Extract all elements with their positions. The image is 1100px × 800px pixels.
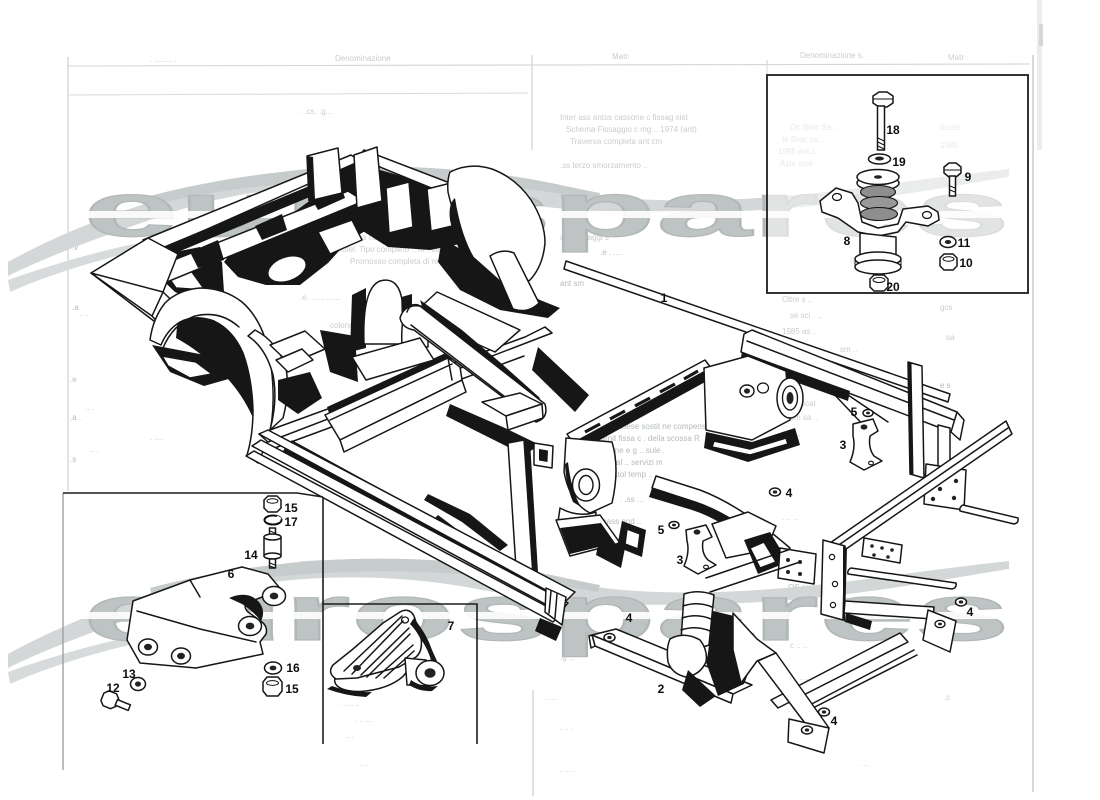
svg-text:17: 17 <box>284 515 298 529</box>
svg-text:sm ..: sm .. <box>840 345 857 354</box>
svg-text:. .cs. .g...: . .cs. .g... <box>300 107 332 116</box>
svg-text:6: 6 <box>228 567 235 581</box>
svg-text:.e. ...... ......: .e. ...... ...... <box>300 293 340 302</box>
svg-text:. ..: . .. <box>80 309 89 318</box>
svg-text:1: 1 <box>661 291 668 305</box>
svg-text:. .. ...: . .. ... <box>355 715 373 724</box>
svg-text:. ....: . .... <box>150 433 163 442</box>
svg-text:10: 10 <box>959 256 973 270</box>
svg-text:. ..: . .. <box>860 759 869 768</box>
svg-text:5: 5 <box>851 405 858 419</box>
svg-text:Promosso completa di re: Promosso completa di re <box>350 257 439 266</box>
svg-text:Denominazione: Denominazione <box>335 54 391 63</box>
svg-text:.. .: .. . <box>85 403 94 412</box>
svg-text:Denominazione s.: Denominazione s. <box>800 51 864 60</box>
svg-text:. ........ .: . ........ . <box>150 55 177 64</box>
svg-text:12: 12 <box>106 681 120 695</box>
svg-text:ant sm: ant sm <box>560 279 584 288</box>
svg-text:.. .: .. . <box>345 731 354 740</box>
svg-text:4: 4 <box>831 714 838 728</box>
svg-text:4: 4 <box>967 605 974 619</box>
svg-text:. .. ..: . .. .. <box>782 513 798 522</box>
svg-text:13: 13 <box>122 667 136 681</box>
svg-text:3: 3 <box>840 438 847 452</box>
svg-text:. .. .: . .. . <box>560 723 573 732</box>
svg-text:sa: sa <box>946 333 955 342</box>
svg-text:Traversa completa ant cm: Traversa completa ant cm <box>570 137 663 146</box>
svg-text:3: 3 <box>677 553 684 567</box>
svg-text:gcs: gcs <box>940 303 952 312</box>
svg-text:se sci . ..: se sci . .. <box>790 311 822 320</box>
svg-text:15: 15 <box>284 501 298 515</box>
svg-text:Schema Fissaggio c mg ..: Schema Fissaggio c mg .. 1974 (ant) <box>566 125 697 134</box>
svg-text:16: 16 <box>286 661 300 675</box>
svg-text:7: 7 <box>448 619 455 633</box>
svg-text:. .ss ...: . .ss ... <box>620 495 644 504</box>
svg-text:5: 5 <box>658 523 665 537</box>
svg-text:11: 11 <box>958 236 971 250</box>
svg-text:4: 4 <box>786 486 793 500</box>
svg-text:.a: .a <box>72 303 79 312</box>
svg-text:2: 2 <box>658 682 665 696</box>
svg-text:9: 9 <box>965 170 972 184</box>
svg-text:. ... .: . ... . <box>560 765 576 774</box>
svg-text:.c: .c <box>944 693 950 702</box>
svg-text:Inter ass antss cassone c: Inter ass antss cassone c fissag sist <box>560 113 688 122</box>
svg-text:20: 20 <box>886 280 900 294</box>
svg-text:. ...: . ... <box>545 693 556 702</box>
svg-text:Matr: Matr <box>948 53 964 62</box>
svg-text:8: 8 <box>844 234 851 248</box>
svg-text:.. .: .. . <box>90 445 99 454</box>
svg-text:19: 19 <box>892 155 906 169</box>
svg-text:. .... ..: . .... .. <box>340 699 360 708</box>
svg-text:18: 18 <box>886 123 900 137</box>
svg-text:14: 14 <box>244 548 258 562</box>
svg-text:.e: .e <box>70 375 77 384</box>
svg-text:1985 as ..: 1985 as .. <box>782 327 817 336</box>
svg-text:.s: .s <box>70 455 76 464</box>
svg-text:. ..: . .. <box>360 759 369 768</box>
svg-text:e s: e s <box>940 381 951 390</box>
svg-text:15: 15 <box>285 682 299 696</box>
svg-text:.a .: .a . <box>70 413 81 422</box>
svg-text:4: 4 <box>626 611 633 625</box>
svg-text:Matr.: Matr. <box>612 52 630 61</box>
svg-text:Oltre s ..: Oltre s .. <box>782 295 812 304</box>
